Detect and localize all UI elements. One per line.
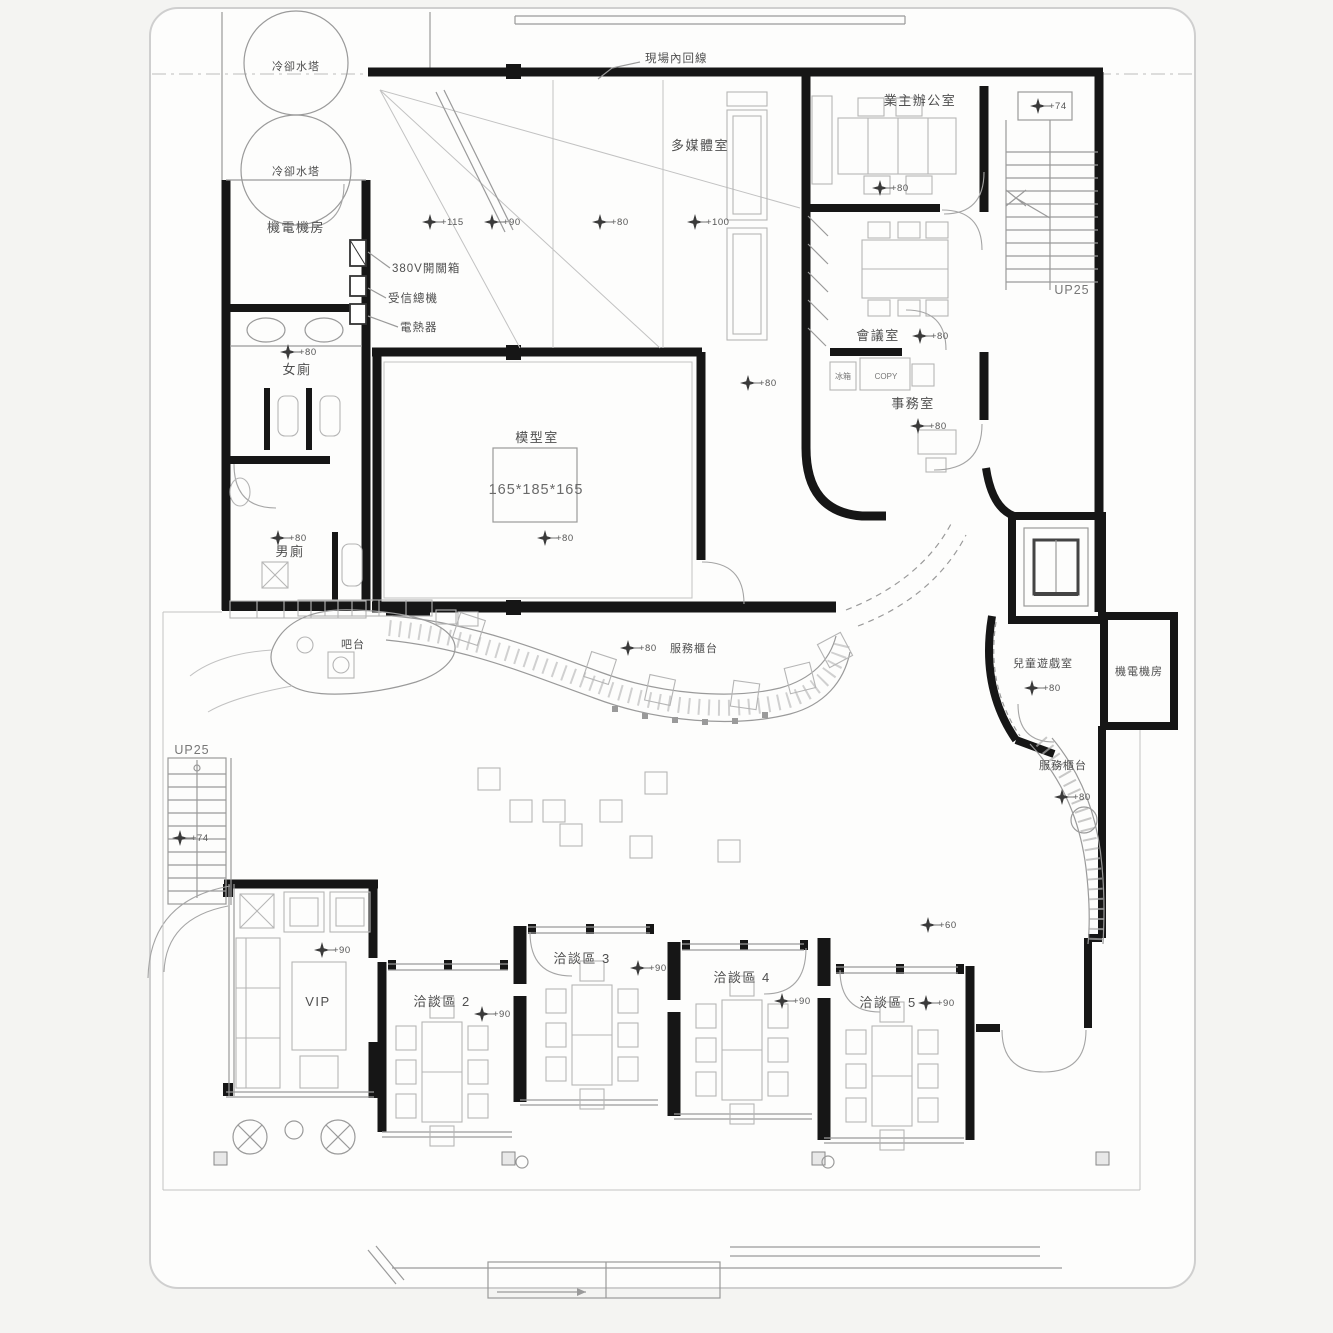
talk-area-3-label: 洽談區 3 (553, 951, 610, 966)
mens-toilet-label: 男廁 (275, 544, 304, 559)
svg-text:+74: +74 (191, 833, 209, 844)
womens-toilet-label: 女廁 (282, 362, 311, 377)
vip-label: VIP (305, 994, 330, 1009)
svg-text:+80: +80 (556, 533, 574, 544)
receiver-label: 受信總機 (388, 291, 438, 305)
talk-area-4-label: 洽談區 4 (713, 970, 770, 985)
svg-text:+90: +90 (493, 1009, 511, 1020)
site-line-label: 現場內回線 (645, 51, 708, 65)
cooling-tower-2-label: 冷卻水塔 (272, 165, 320, 178)
svg-text:+80: +80 (931, 331, 949, 342)
svg-text:+80: +80 (929, 421, 947, 432)
mech-room-left-label: 機電機房 (267, 220, 325, 235)
model-dimensions: 165*185*165 (489, 482, 584, 498)
floor-plan-svg: 冷卻水塔 冷卻水塔 (0, 0, 1333, 1333)
svg-text:+80: +80 (1073, 792, 1091, 803)
service-counter-right-label: 服務櫃台 (1039, 758, 1087, 772)
mech-room-right-label: 機電機房 (1115, 664, 1163, 678)
meeting-room-label: 會議室 (856, 328, 900, 343)
svg-text:+80: +80 (289, 533, 307, 544)
copy-label: COPY (875, 372, 898, 381)
elevator (1024, 528, 1088, 606)
svg-text:+90: +90 (649, 963, 667, 974)
svg-text:+90: +90 (333, 945, 351, 956)
kids-room-label: 兒童遊戲室 (1013, 656, 1073, 670)
bar-label: 吧台 (341, 637, 365, 651)
svg-text:+80: +80 (759, 378, 777, 389)
svg-text:+90: +90 (937, 998, 955, 1009)
svg-text:+80: +80 (611, 217, 629, 228)
cooling-tower-1-label: 冷卻水塔 (272, 60, 320, 73)
stair-right-up-label: UP25 (1054, 283, 1089, 297)
svg-text:+115: +115 (441, 217, 464, 228)
svg-text:+80: +80 (299, 347, 317, 358)
floor-plan-page: 冷卻水塔 冷卻水塔 (0, 0, 1333, 1333)
svg-text:+74: +74 (1049, 101, 1067, 112)
svg-text:+90: +90 (503, 217, 521, 228)
svg-text:+80: +80 (639, 643, 657, 654)
heater-label: 電熱器 (400, 321, 438, 334)
owner-office-label: 業主辦公室 (884, 93, 957, 108)
switch-box-label: 380V開關箱 (392, 261, 460, 275)
svg-text:+60: +60 (939, 920, 957, 931)
talk-area-2-label: 洽談區 2 (413, 994, 470, 1009)
svg-text:+80: +80 (1043, 683, 1061, 694)
svg-text:+90: +90 (793, 996, 811, 1007)
model-room-label: 模型室 (515, 430, 559, 445)
office-room-label: 事務室 (891, 396, 935, 411)
service-counter-mid-label: 服務櫃台 (670, 641, 718, 655)
svg-text:+80: +80 (891, 183, 909, 194)
svg-text:+100: +100 (706, 217, 729, 228)
multimedia-label: 多媒體室 (671, 138, 729, 153)
talk-area-5-label: 洽談區 5 (859, 995, 916, 1010)
fridge-label: 冰箱 (835, 371, 851, 381)
stair-left-up-label: UP25 (174, 743, 209, 757)
room-mech-right: 機電機房 (1115, 664, 1163, 678)
